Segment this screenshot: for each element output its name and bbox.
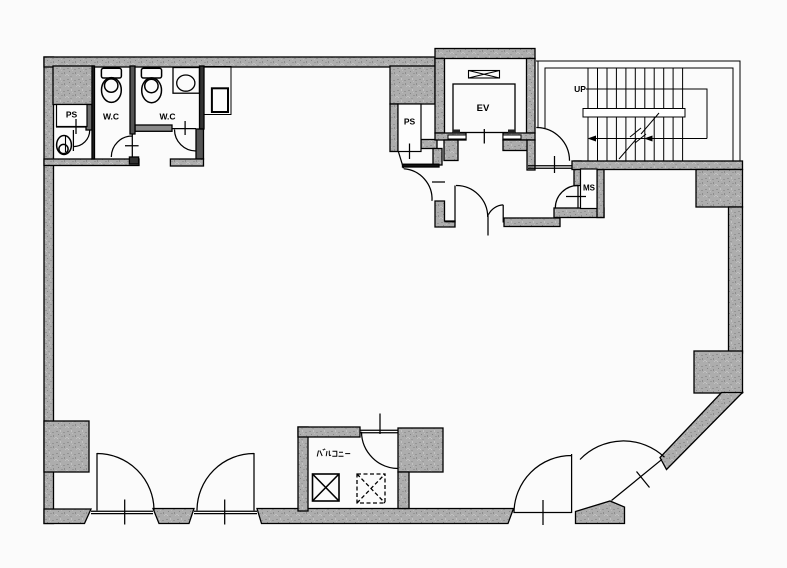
- svg-text:UP: UP: [574, 84, 586, 94]
- svg-text:PS: PS: [404, 117, 416, 127]
- svg-text:W.C: W.C: [159, 112, 175, 122]
- svg-text:EV: EV: [477, 103, 490, 114]
- svg-text:W.C: W.C: [103, 112, 119, 122]
- svg-text:MS: MS: [583, 184, 596, 193]
- svg-text:PS: PS: [66, 110, 78, 120]
